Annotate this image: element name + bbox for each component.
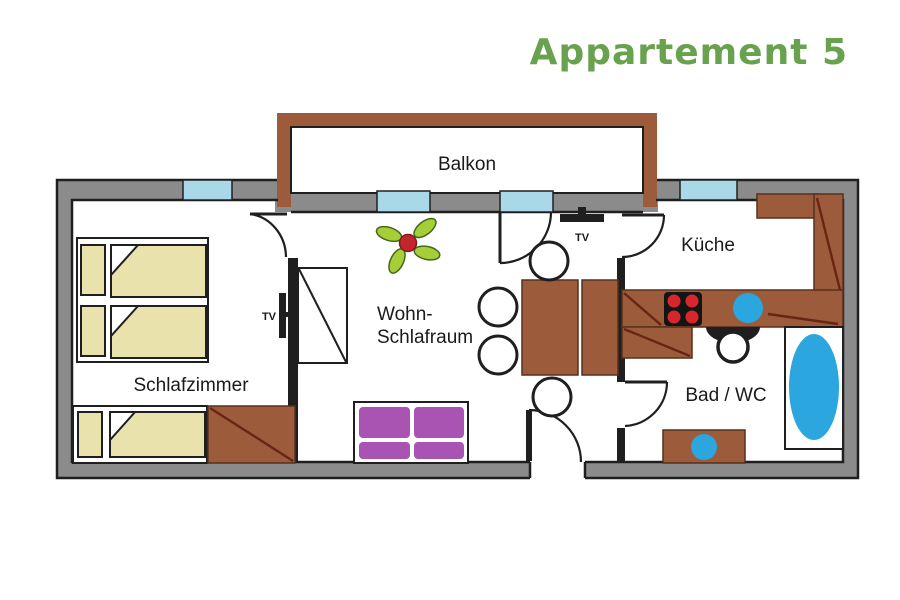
stove-icon — [664, 292, 702, 326]
kitchen-counter-bottom — [622, 290, 843, 327]
tv-label-living: TV — [575, 232, 590, 244]
wall-living-bath-lower — [617, 428, 625, 462]
bed-icon-1 — [81, 245, 206, 297]
balcony-door-glass — [500, 191, 553, 212]
bathroom-label: Bad / WC — [685, 385, 766, 406]
bathtub-icon — [785, 327, 843, 449]
sofa-icon — [354, 402, 468, 463]
bed-icon-3 — [78, 412, 205, 457]
kitchen-counter-right — [814, 194, 843, 294]
bedroom-label: Schlafzimmer — [133, 375, 249, 396]
vanity-with-sink — [663, 430, 745, 463]
twin-bed-block — [77, 238, 208, 362]
wardrobe-icon-bedroom — [208, 406, 295, 463]
living-label-line2: Schlafraum — [377, 327, 473, 348]
window-icon-living — [377, 191, 430, 212]
bed-icon-2 — [81, 306, 206, 358]
single-bed-block — [73, 406, 207, 463]
kitchen-counter-top — [757, 194, 818, 218]
kitchen-label: Küche — [681, 235, 735, 256]
page-title: Appartement 5 — [530, 32, 848, 73]
floor-plan-page: Appartement 5 Balkon — [0, 0, 900, 600]
toilet-icon — [706, 327, 760, 362]
chair-icon-bottom — [533, 378, 571, 416]
wardrobe-icon-living — [298, 268, 347, 363]
door-swing-icon-bedroom — [250, 214, 287, 257]
sink-icon-bathroom — [691, 434, 717, 460]
door-swing-icon-entrance — [529, 410, 581, 462]
tv-label-bedroom: TV — [262, 311, 277, 323]
floor-plan-drawing: Appartement 5 Balkon — [0, 0, 900, 600]
door-swing-icon-bathroom — [625, 382, 667, 426]
window-icon-kitchen — [680, 180, 737, 200]
kitchen-cabinet-lower — [622, 327, 692, 358]
balcony-label: Balkon — [438, 154, 496, 175]
window-icon-bedroom — [183, 180, 232, 200]
chair-icon-top — [530, 242, 568, 280]
sink-icon-kitchen — [733, 293, 763, 323]
balcony: Balkon — [277, 113, 657, 207]
living-label-line1: Wohn- — [377, 304, 433, 325]
chair-icon-left2 — [479, 336, 517, 374]
chair-icon-left1 — [479, 288, 517, 326]
door-swing-icon-kitchen — [622, 215, 664, 257]
plant-icon — [375, 215, 441, 276]
dining-table — [522, 280, 618, 375]
